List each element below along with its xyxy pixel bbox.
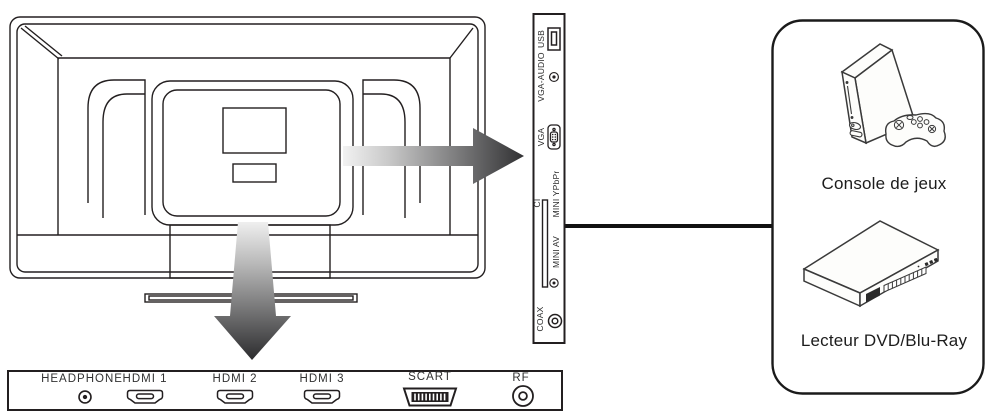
arrow-to-side-panel-icon [343,128,524,184]
tv-left-cable-channel [88,80,145,218]
port-label-mini-ypbpr: MINI YPbPr [551,171,561,218]
port-label-headphone: HEADPHONE [41,373,123,385]
port-label-mini-av: MINI AV [551,236,561,268]
port-label-ci: CI [532,199,542,208]
port-label-coax: COAX [535,307,545,332]
port-label-vga-audio: VGA-AUDIO [536,52,546,102]
device-label-dvd-player: Lecteur DVD/Blu-Ray [801,331,967,351]
port-label-hdmi2: HDMI 2 [213,373,258,385]
port-label-usb: USB [536,30,546,48]
tv-vesa-rect [223,108,286,153]
tv-label-rect [233,164,276,182]
port-label-hdmi1: HDMI 1 [123,373,168,385]
port-label-rf: RF [512,372,529,384]
device-label-game-console: Console de jeux [822,174,947,194]
arrow-to-bottom-panel-icon [214,222,291,360]
port-label-hdmi3: HDMI 3 [300,373,345,385]
tv-center-panel [152,81,353,225]
port-label-vga: VGA [536,128,546,147]
port-label-scart: SCART [408,371,452,383]
tv-connection-diagram: USB VGA-AUDIO VGA CI MINI YPbPr MINI AV … [0,0,987,412]
tv-corner-diagonals [21,26,473,59]
